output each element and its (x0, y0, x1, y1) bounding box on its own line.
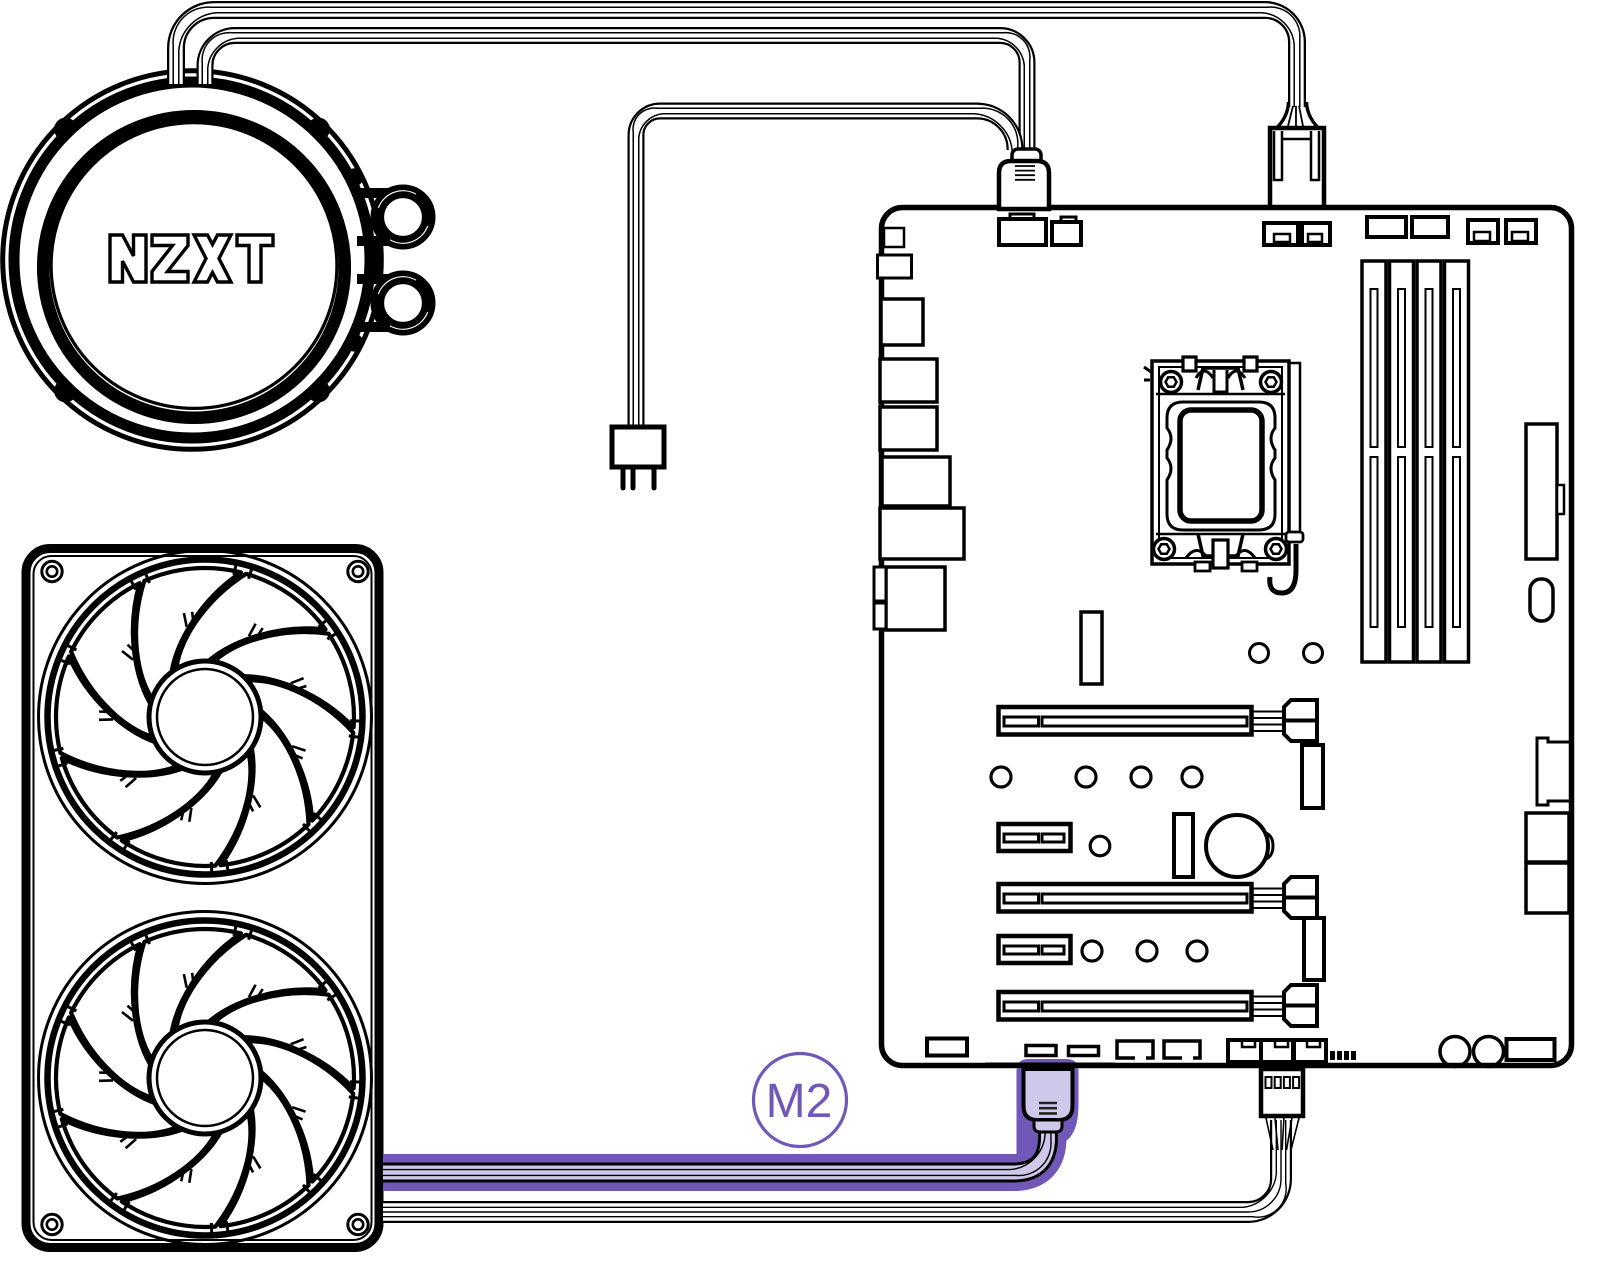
svg-text:M2: M2 (766, 1075, 833, 1128)
